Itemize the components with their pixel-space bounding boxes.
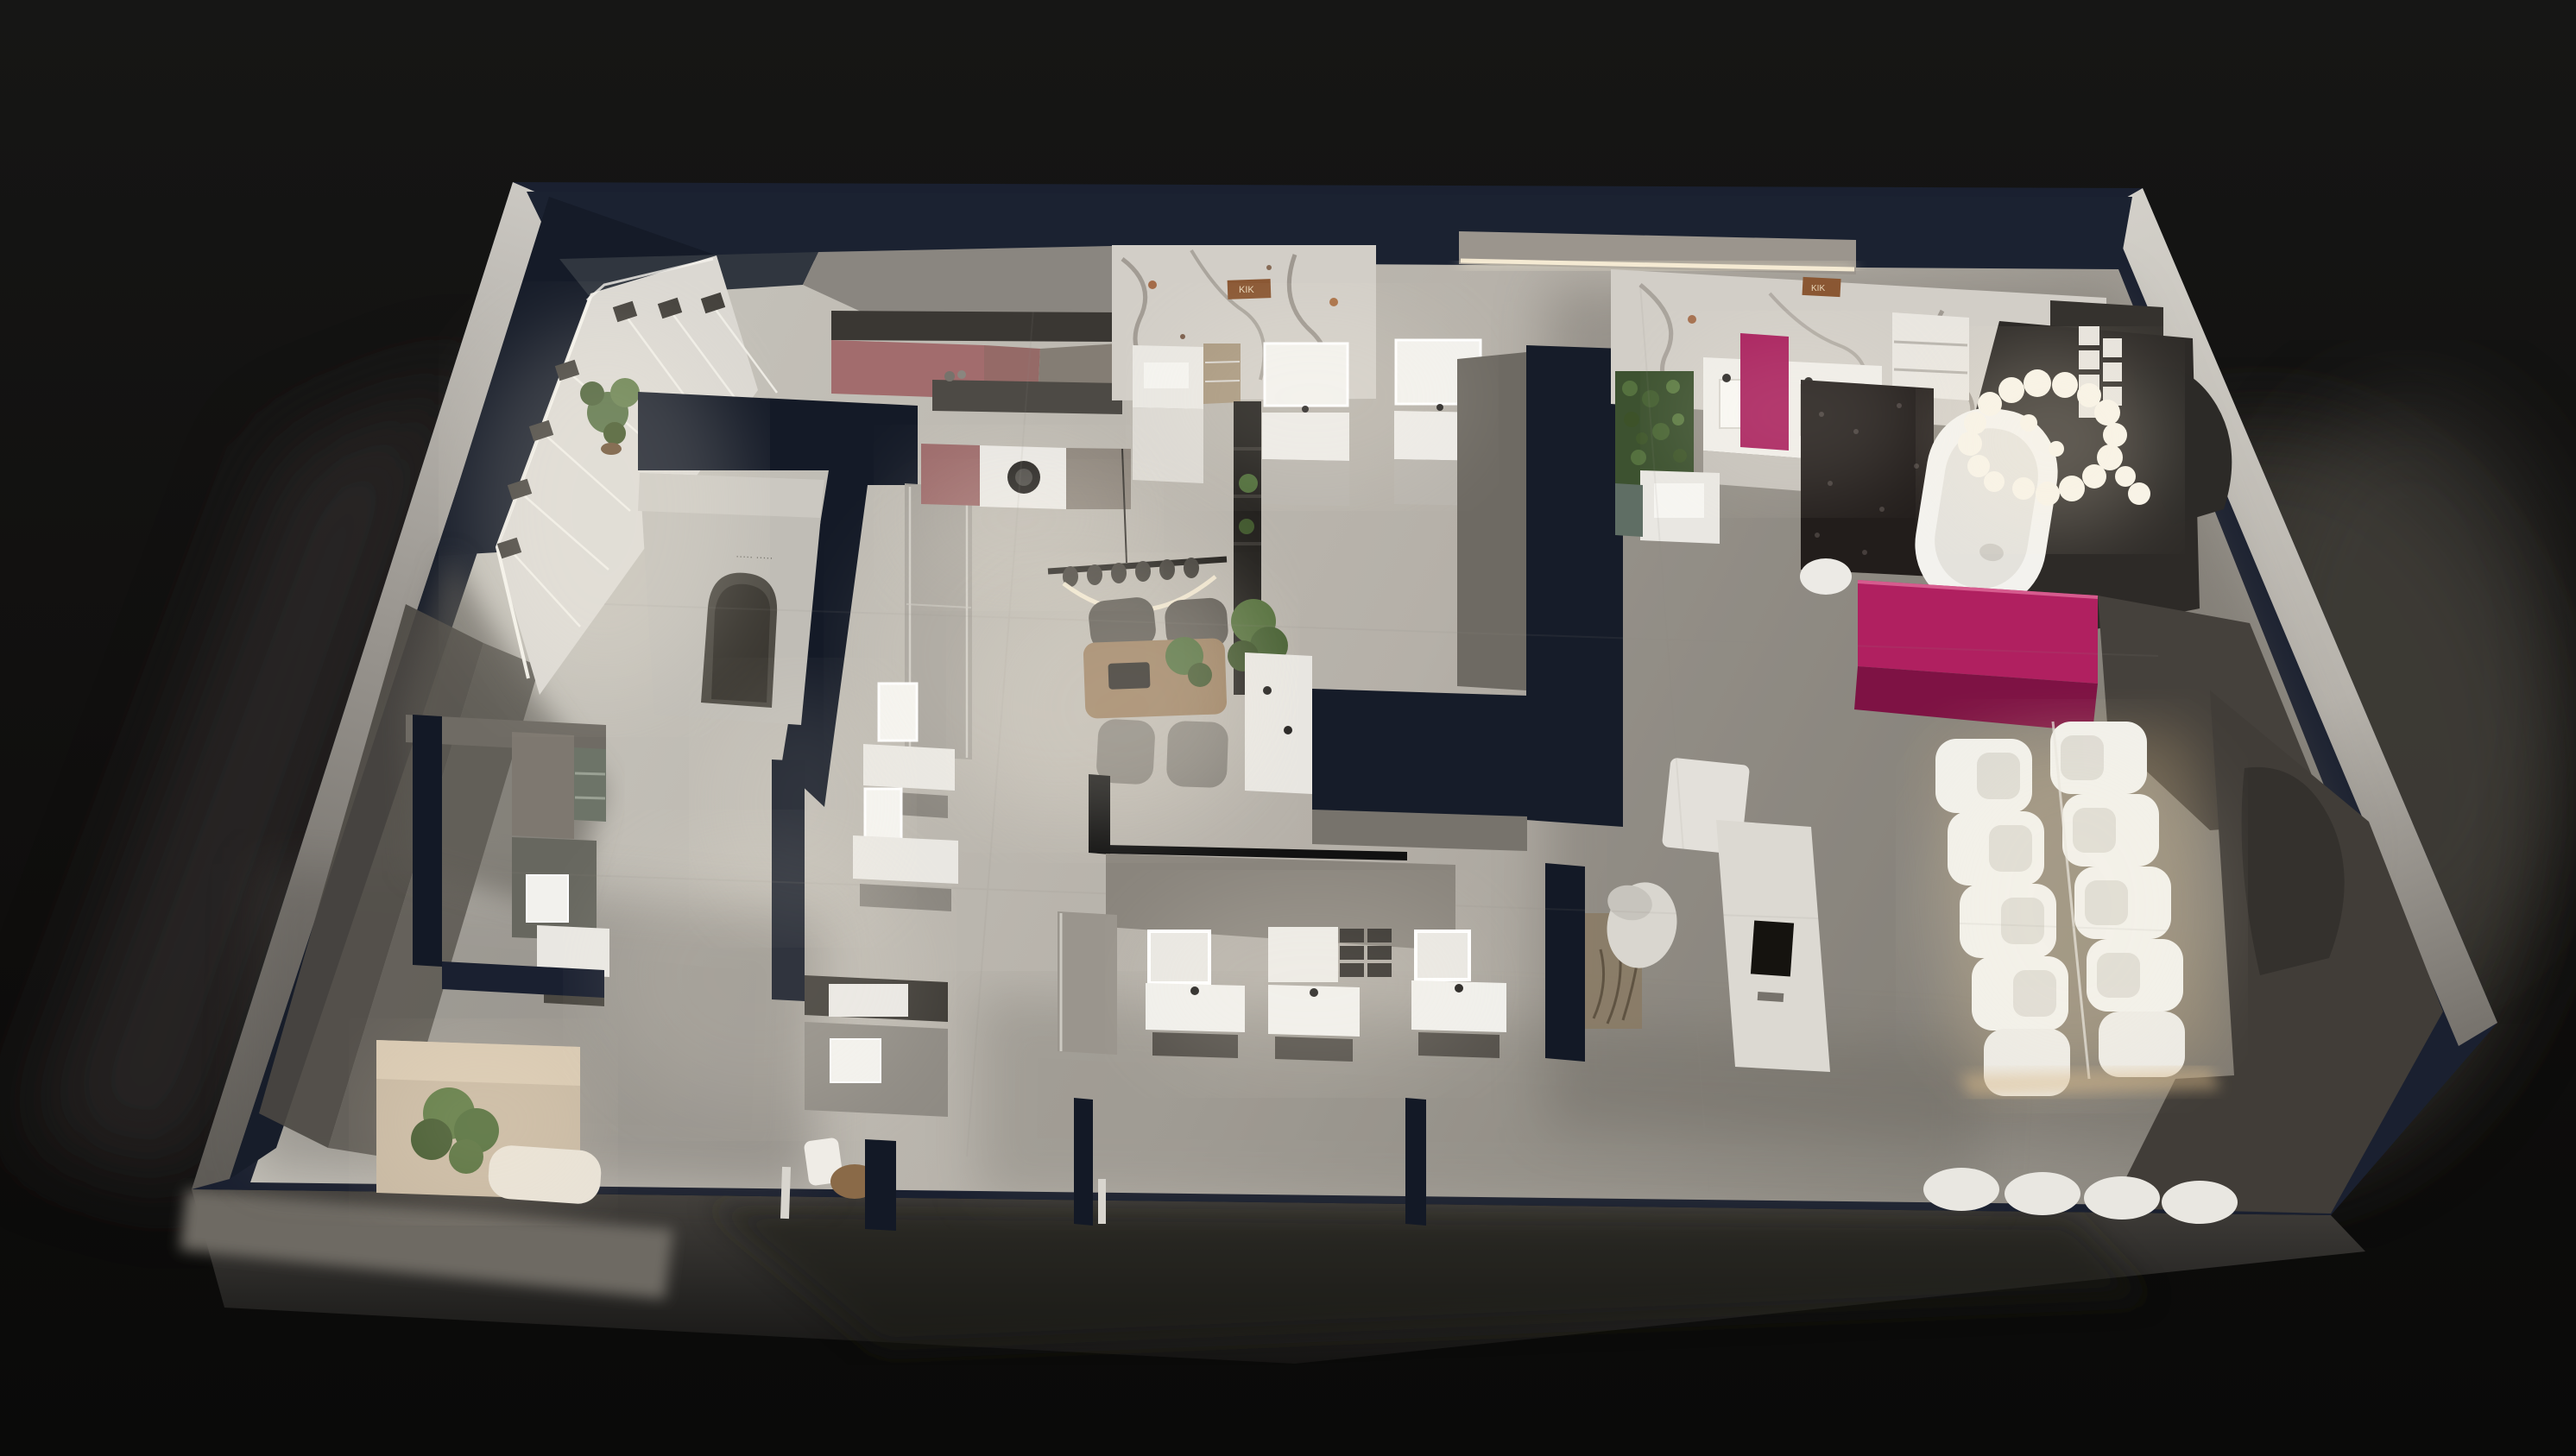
svg-text:KIK: KIK bbox=[1811, 284, 1825, 293]
svg-text:KIK: KIK bbox=[1239, 285, 1254, 295]
svg-text:····· ·····: ····· ····· bbox=[736, 550, 773, 564]
